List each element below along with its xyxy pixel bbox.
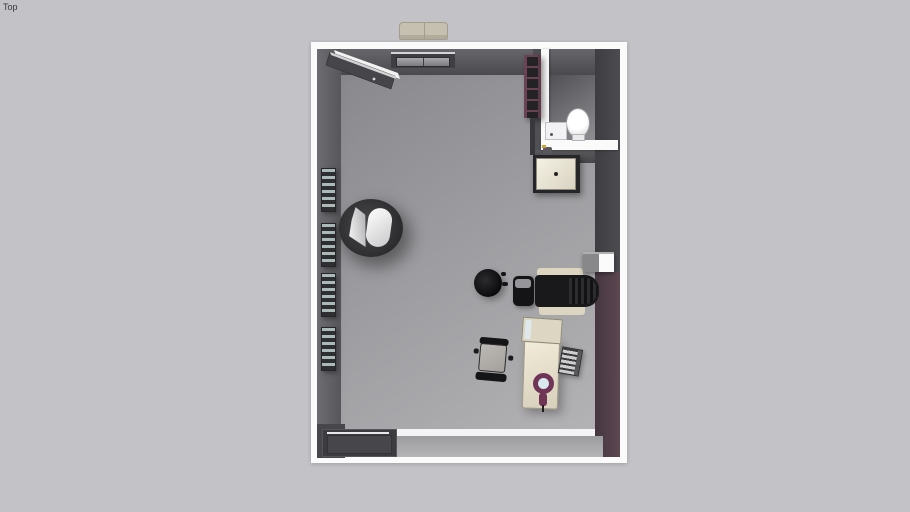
bathroom-washbasin[interactable] bbox=[545, 122, 567, 140]
radiator-1[interactable] bbox=[321, 168, 336, 212]
ceiling-vent[interactable] bbox=[391, 52, 455, 68]
office-chair-armrest-bottom bbox=[475, 372, 507, 383]
sink-vanity[interactable] bbox=[533, 155, 580, 193]
desk-hutch-glint bbox=[524, 320, 531, 339]
wall-shelf-rail bbox=[530, 118, 535, 155]
clinician-stool-pad bbox=[515, 279, 531, 288]
radiator-3[interactable] bbox=[321, 273, 336, 317]
treatment-chair-group[interactable] bbox=[513, 268, 601, 315]
round-stool[interactable] bbox=[474, 269, 502, 297]
desk-hutch[interactable] bbox=[521, 317, 563, 345]
ceiling-vent-grille bbox=[396, 57, 450, 67]
radiator-2[interactable] bbox=[321, 223, 336, 267]
tub-armchair[interactable] bbox=[339, 199, 403, 257]
floor-plan-model[interactable] bbox=[311, 42, 627, 463]
armchair-cushion bbox=[364, 207, 393, 249]
vanity-basin bbox=[536, 158, 576, 190]
bathroom-partition-horizontal[interactable] bbox=[541, 140, 618, 150]
treatment-chair-footrest bbox=[569, 278, 597, 304]
magnifier-lamp-handle bbox=[539, 393, 547, 406]
pass-through-window[interactable] bbox=[583, 252, 614, 272]
modeler-window: { "app": { "view_label": "Top" }, "viewp… bbox=[0, 0, 910, 512]
radiator-4[interactable] bbox=[321, 327, 336, 371]
exterior-bench[interactable] bbox=[399, 22, 448, 40]
magnifier-lamp[interactable] bbox=[533, 373, 554, 394]
office-chair[interactable] bbox=[475, 337, 511, 384]
view-orientation-label: Top bbox=[3, 2, 18, 12]
office-chair-seat bbox=[478, 343, 507, 373]
toilet-base bbox=[572, 134, 585, 141]
clinician-stool[interactable] bbox=[513, 276, 534, 306]
wall-shelf-unit[interactable] bbox=[524, 55, 541, 118]
treatment-chair-cushion bbox=[535, 275, 599, 307]
